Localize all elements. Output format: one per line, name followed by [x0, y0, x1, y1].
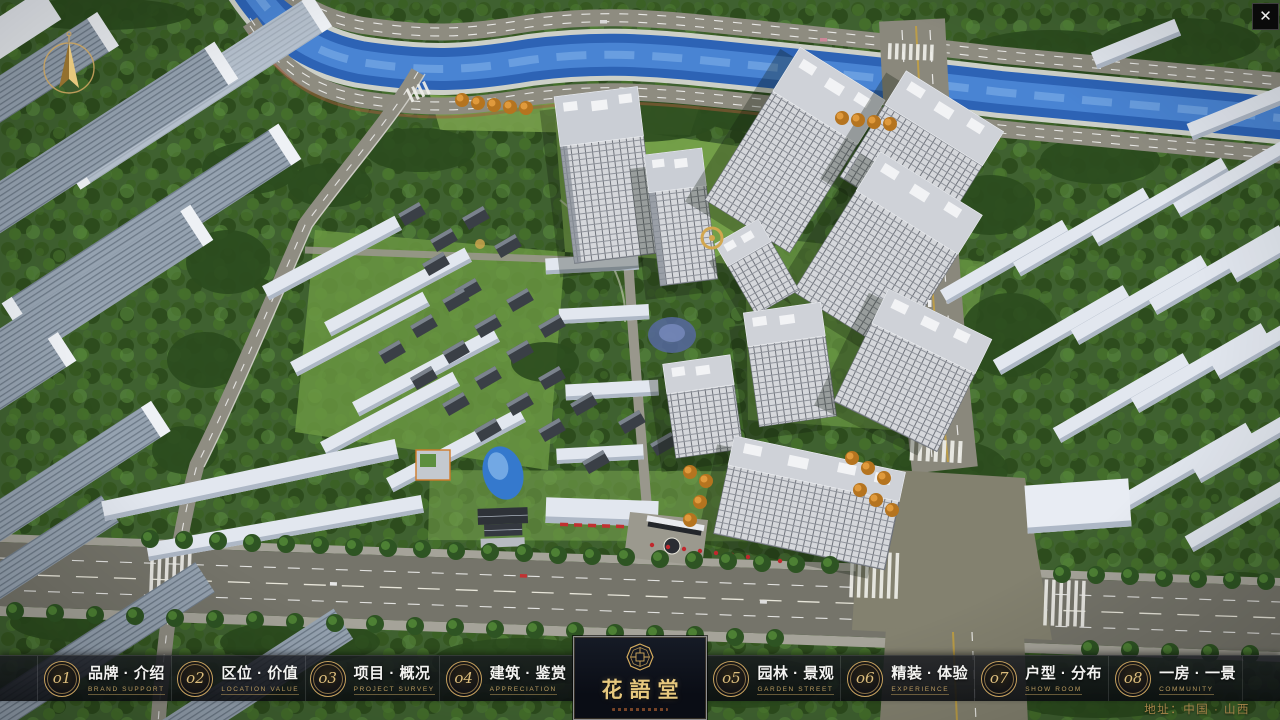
menu-label-zh: 园林 · 景观	[757, 662, 834, 683]
presentation-window: ✕ o1 品牌 · 介绍 BRAND SUPPORT o2 区位 · 价值 LO…	[0, 0, 1280, 720]
menu-label-en: GARDEN STREET	[757, 686, 833, 696]
menu-label-zh: 项目 · 概况	[354, 662, 431, 683]
menu-item-architecture[interactable]: o4 建筑 · 鉴赏 APPRECIATION	[439, 656, 573, 701]
menu-label-en: PROJECT SURVEY	[354, 686, 435, 696]
pavilion	[477, 507, 528, 548]
project-address: 地址：中国 · 山西	[1144, 701, 1250, 717]
menu-label-en: SHOW ROOM	[1025, 686, 1082, 696]
sales-office	[416, 450, 450, 480]
menu-label-zh: 精装 · 体验	[891, 662, 968, 683]
menu-label-zh: 户型 · 分布	[1025, 662, 1102, 683]
menu-label-zh: 建筑 · 鉴赏	[490, 662, 567, 683]
menubar-left-spacer	[0, 656, 37, 701]
menu-item-interior-experience[interactable]: o6 精装 · 体验 EXPERIENCE	[840, 656, 974, 701]
menu-label-zh: 一房 · 一景	[1159, 662, 1236, 683]
close-button[interactable]: ✕	[1252, 3, 1279, 30]
menu-item-project-survey[interactable]: o3 项目 · 概况 PROJECT SURVEY	[305, 656, 439, 701]
menu-label-en: COMMUNITY	[1159, 686, 1213, 696]
menu-label-zh: 品牌 · 介绍	[88, 662, 165, 683]
menu-badge-07: o7	[981, 661, 1017, 697]
close-icon: ✕	[1259, 8, 1272, 25]
menu-badge-05: o5	[713, 661, 749, 697]
menubar-right-spacer	[1242, 656, 1280, 701]
compass-icon	[36, 30, 102, 100]
menu-badge-08: o8	[1115, 661, 1151, 697]
logo-tagline	[612, 708, 668, 711]
menu-label-en: EXPERIENCE	[891, 686, 949, 696]
menu-badge-01: o1	[44, 661, 80, 697]
menu-label-en: LOCATION VALUE	[221, 686, 299, 696]
menu-badge-06: o6	[847, 661, 883, 697]
menu-item-room-views[interactable]: o8 一房 · 一景 COMMUNITY	[1108, 656, 1242, 701]
menu-label-zh: 区位 · 价值	[221, 662, 298, 683]
menu-item-garden-landscape[interactable]: o5 园林 · 景观 GARDEN STREET	[706, 656, 840, 701]
project-logo-title: 花語堂	[595, 674, 686, 704]
menu-label-en: BRAND SUPPORT	[88, 686, 165, 696]
menu-badge-03: o3	[310, 661, 346, 697]
site-plan-3d-view[interactable]	[0, 0, 1280, 720]
menu-item-location-value[interactable]: o2 区位 · 价值 LOCATION VALUE	[171, 656, 305, 701]
menu-badge-04: o4	[446, 661, 482, 697]
menu-label-en: APPRECIATION	[490, 686, 557, 696]
project-logo-panel[interactable]: 花語堂	[573, 636, 707, 720]
menu-item-floorplans[interactable]: o7 户型 · 分布 SHOW ROOM	[974, 656, 1108, 701]
menu-badge-02: o2	[177, 661, 213, 697]
logo-seal-icon	[625, 642, 655, 672]
menu-item-brand-intro[interactable]: o1 品牌 · 介绍 BRAND SUPPORT	[37, 656, 171, 701]
